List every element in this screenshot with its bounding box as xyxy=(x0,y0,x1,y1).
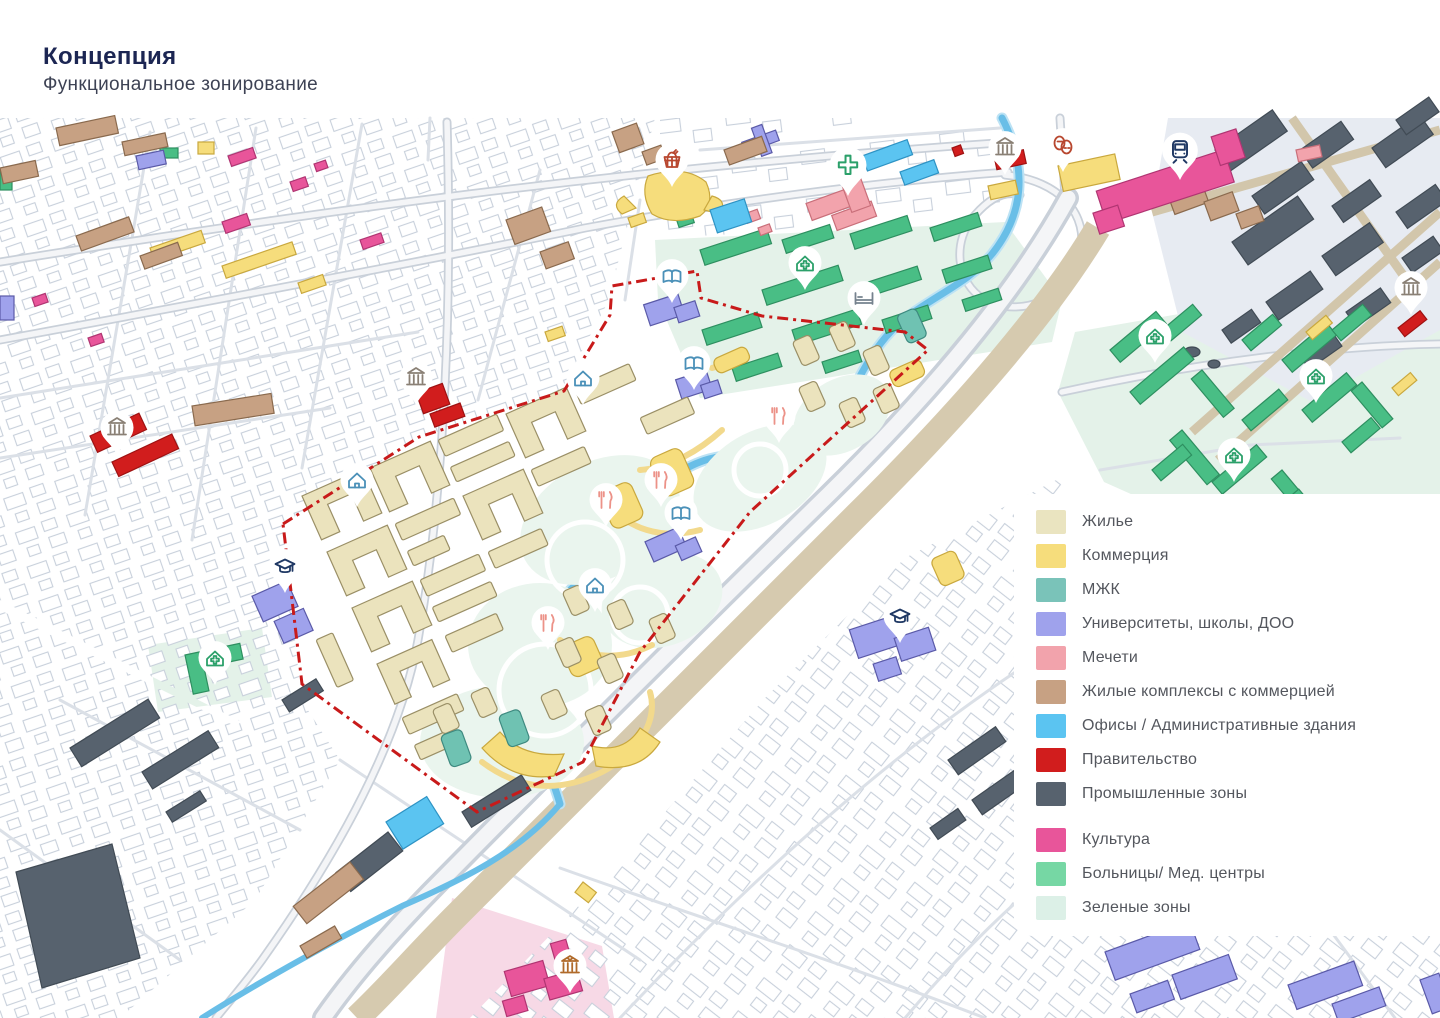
legend-label: Правительство xyxy=(1082,751,1197,769)
legend-swatch xyxy=(1036,862,1066,886)
legend-row: Коммерция xyxy=(1036,542,1440,570)
legend-row: Культура xyxy=(1036,826,1440,854)
legend-row: Мечети xyxy=(1036,644,1440,672)
legend-row: Университеты, школы, ДОО xyxy=(1036,610,1440,638)
legend-row: Промышленные зоны xyxy=(1036,780,1440,808)
legend-swatch xyxy=(1036,714,1066,738)
header: Концепция Функциональное зонирование xyxy=(43,42,318,96)
legend-label: Университеты, школы, ДОО xyxy=(1082,615,1294,633)
legend-swatch xyxy=(1036,680,1066,704)
legend-row: Больницы/ Мед. центры xyxy=(1036,860,1440,888)
legend-label: Жилье xyxy=(1082,513,1133,531)
legend-row: Зеленые зоны xyxy=(1036,894,1440,922)
legend-label: Культура xyxy=(1082,831,1150,849)
legend-label: Офисы / Административные здания xyxy=(1082,717,1356,735)
legend-swatch xyxy=(1036,544,1066,568)
legend-label: Зеленые зоны xyxy=(1082,899,1191,917)
legend-swatch xyxy=(1036,612,1066,636)
legend-swatch xyxy=(1036,646,1066,670)
legend-panel: Жилье Коммерция МЖК Университеты, школы,… xyxy=(1014,494,1440,936)
legend-swatch xyxy=(1036,828,1066,852)
legend-swatch xyxy=(1036,782,1066,806)
masterplan-slide: Концепция Функциональное зонирование Жил… xyxy=(0,0,1440,1018)
legend-swatch xyxy=(1036,748,1066,772)
legend-swatch xyxy=(1036,896,1066,920)
page-subtitle: Функциональное зонирование xyxy=(43,74,318,96)
legend-swatch xyxy=(1036,578,1066,602)
legend-label: МЖК xyxy=(1082,581,1120,599)
legend-row: Правительство xyxy=(1036,746,1440,774)
legend-label: Мечети xyxy=(1082,649,1138,667)
legend-label: Больницы/ Мед. центры xyxy=(1082,865,1265,883)
legend-row: Жилье xyxy=(1036,508,1440,536)
legend-row: Офисы / Административные здания xyxy=(1036,712,1440,740)
legend-label: Промышленные зоны xyxy=(1082,785,1247,803)
legend-row: Жилые комплексы с коммерцией xyxy=(1036,678,1440,706)
legend-label: Жилые комплексы с коммерцией xyxy=(1082,683,1335,701)
legend-label: Коммерция xyxy=(1082,547,1169,565)
legend-row: МЖК xyxy=(1036,576,1440,604)
legend-swatch xyxy=(1036,510,1066,534)
page-title: Концепция xyxy=(43,42,318,72)
